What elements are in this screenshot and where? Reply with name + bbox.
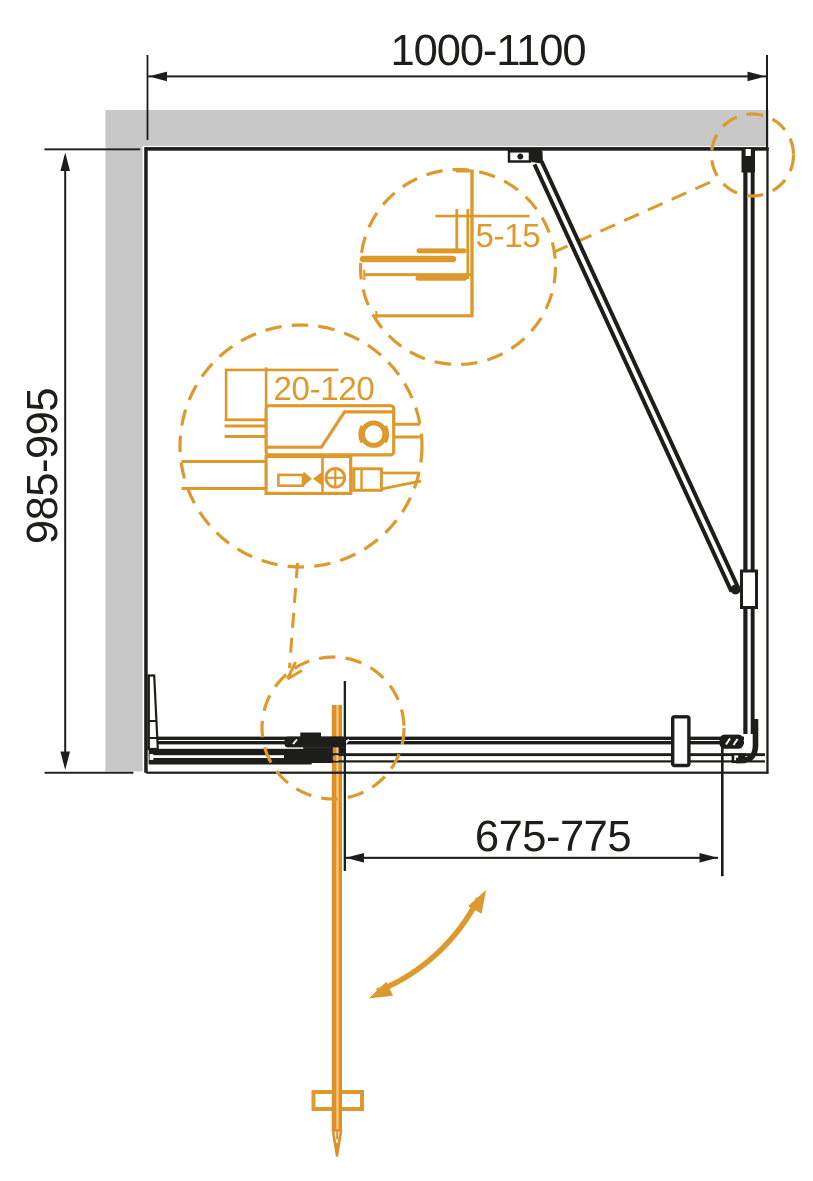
svg-text:20-120: 20-120: [274, 370, 375, 407]
svg-text:675-775: 675-775: [475, 813, 631, 861]
svg-text:5-15: 5-15: [476, 217, 541, 254]
svg-text:1000-1100: 1000-1100: [391, 27, 586, 75]
svg-text:985-995: 985-995: [19, 388, 67, 544]
